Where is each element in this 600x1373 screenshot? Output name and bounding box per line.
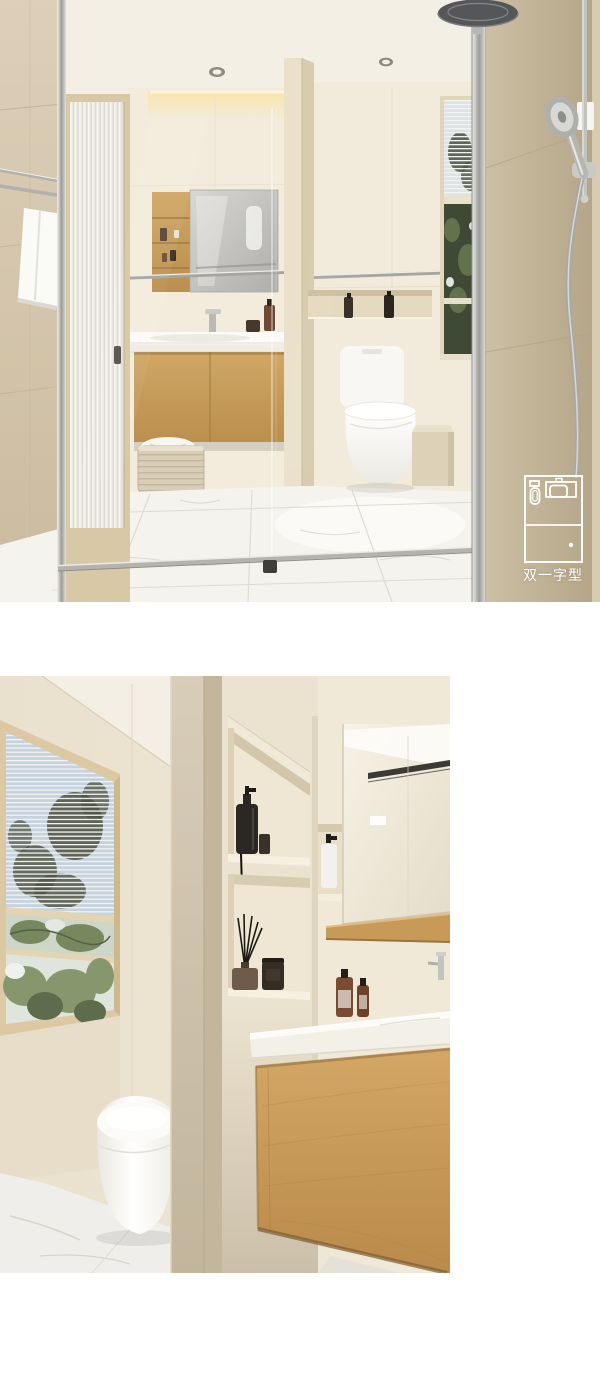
white-pump-bottle	[321, 844, 337, 888]
layout-badge: 双一字型	[513, 475, 593, 583]
plan-sink	[550, 486, 567, 498]
mirror-closeup	[343, 724, 450, 924]
glass-frame-left	[57, 0, 66, 602]
door-stopper	[263, 560, 277, 573]
stool	[412, 425, 454, 486]
bathroom-scene-overview	[0, 0, 600, 602]
plan-toilet-tank	[530, 481, 539, 486]
plan-door-handle	[568, 543, 572, 547]
page: 双一字型	[0, 0, 600, 1373]
floorplan-glyphs	[526, 477, 581, 561]
dark-jar	[262, 958, 284, 990]
bathroom-scene-closeup	[0, 676, 450, 1273]
storage-basket	[138, 437, 204, 494]
niche-bottle	[384, 295, 394, 318]
layout-badge-label: 双一字型	[513, 569, 593, 583]
bathroom-photo-overview: 双一字型	[0, 0, 600, 602]
column	[170, 676, 222, 1273]
hanging-towel	[17, 208, 62, 310]
cove-light	[148, 91, 288, 121]
floorplan-icon	[524, 475, 583, 563]
vanity-cabinet	[134, 352, 284, 451]
window-blinds	[0, 720, 120, 1036]
side-niche	[318, 824, 342, 902]
niche-bottle	[344, 297, 353, 318]
bathroom-photo-vanity-closeup	[0, 676, 450, 1273]
small-dark-jar	[259, 834, 270, 854]
glass-frame-right	[472, 0, 486, 602]
